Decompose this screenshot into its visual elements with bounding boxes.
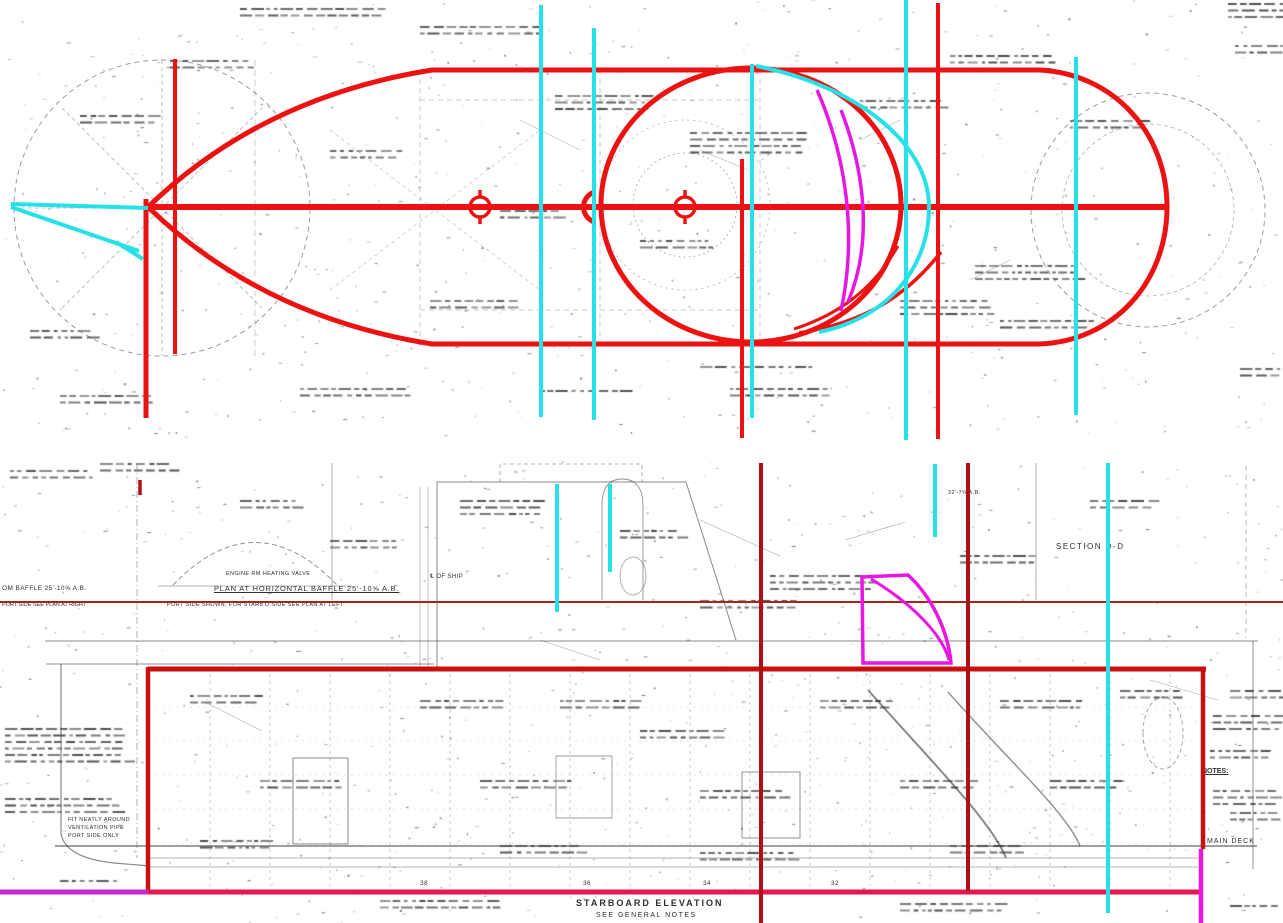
- plan-magenta-curve-a: [817, 90, 849, 311]
- plan-stern-arc-a: [799, 252, 941, 333]
- colored-overlay-layer: [0, 0, 1283, 923]
- elev-magenta-sail: [862, 575, 951, 663]
- blueprint-canvas: OM BAFFLE 25'-10⅝ A.B. PORT SIDE SEE PLA…: [0, 0, 1283, 923]
- plan-cyan-arrow-top: [11, 204, 148, 208]
- elev-magenta-sail-inner: [871, 579, 949, 660]
